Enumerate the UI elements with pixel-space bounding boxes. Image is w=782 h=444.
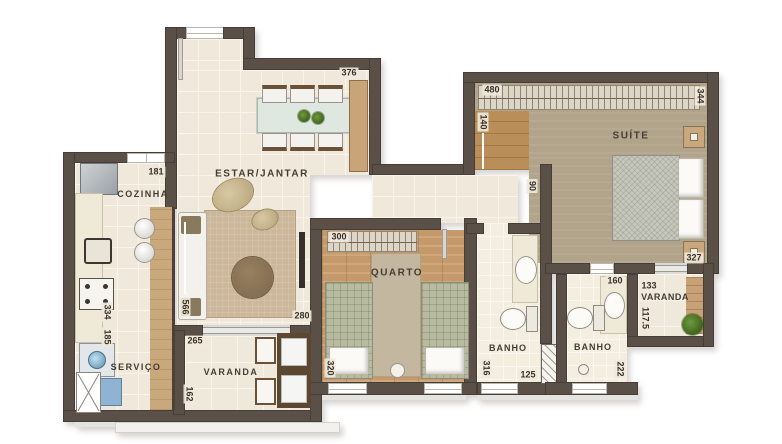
wall xyxy=(372,164,474,175)
banho-social-sink xyxy=(515,256,537,284)
dim-varanda-suite-w: 133 xyxy=(639,281,658,292)
varanda-table xyxy=(277,333,311,408)
kitchen-pass-through xyxy=(127,153,165,163)
room-label-varanda-suite: VARANDA xyxy=(641,292,689,302)
suite-pillow xyxy=(678,199,704,239)
bar-stool xyxy=(134,218,155,239)
suite-varanda-door xyxy=(655,265,687,272)
wall xyxy=(463,72,475,175)
wall xyxy=(63,152,75,422)
entry-step xyxy=(115,422,340,433)
tv-panel xyxy=(299,232,305,288)
single-bed xyxy=(421,282,469,379)
floor-plan-canvas: ESTAR/JANTAR COZINHA SERVIÇO VARANDA QUA… xyxy=(0,0,782,444)
wall xyxy=(545,263,590,274)
dim-varanda-social-d: 162 xyxy=(184,384,195,403)
wall xyxy=(243,58,381,70)
dim-estar-right: 280 xyxy=(292,311,311,322)
floor-hall xyxy=(372,175,518,223)
banho-suite-toilet xyxy=(567,305,605,329)
wall xyxy=(369,58,381,175)
dim-banho-suite-w: 160 xyxy=(605,276,624,287)
room-label-varanda-social: VARANDA xyxy=(204,367,259,377)
dim-varanda-social-w: 265 xyxy=(185,336,204,347)
sill xyxy=(477,395,638,400)
wall xyxy=(63,410,322,422)
wall xyxy=(556,274,567,395)
wall xyxy=(627,336,714,347)
quarto-window-left xyxy=(328,383,367,394)
wall xyxy=(310,218,441,230)
wall xyxy=(614,263,655,274)
dining-chair xyxy=(290,133,315,151)
banho-social-window xyxy=(481,383,518,394)
dim-tick xyxy=(482,133,484,169)
entry-door-opening xyxy=(186,27,224,39)
suite-bed xyxy=(612,155,680,241)
varanda-chair xyxy=(255,378,276,405)
dining-chair xyxy=(318,133,343,151)
dim-cozinha-len: 334 xyxy=(102,302,113,321)
table-plant-icon xyxy=(298,110,310,122)
shower-drain xyxy=(578,364,589,375)
dim-banho-social-d: 316 xyxy=(481,358,492,377)
banho-suite-window xyxy=(572,383,607,394)
suite-pillow xyxy=(678,158,704,198)
dim-estar-left: 566 xyxy=(180,297,191,316)
banho-social-toilet xyxy=(500,306,538,330)
entry-door-leaf xyxy=(179,39,182,79)
dim-quarto-w: 300 xyxy=(329,232,348,243)
wall xyxy=(165,27,177,209)
banho-suite-door-opening xyxy=(590,263,614,274)
dim-varanda-suite-d: 117.5 xyxy=(640,305,651,331)
room-label-servico: SERVIÇO xyxy=(111,362,162,372)
dim-quarto-d: 320 xyxy=(325,358,336,377)
dim-estar-top: 376 xyxy=(339,68,358,79)
dining-chair xyxy=(318,85,343,103)
varanda-chair xyxy=(255,337,276,364)
ottoman xyxy=(232,257,273,298)
room-label-cozinha: COZINHA xyxy=(117,189,169,199)
suite-wardrobe xyxy=(478,85,700,110)
room-label-estar-jantar: ESTAR/JANTAR xyxy=(215,169,309,180)
wall xyxy=(463,72,719,83)
dim-tick xyxy=(184,222,186,294)
quarto-window-right xyxy=(424,383,462,394)
apartment-floor-plan: ESTAR/JANTAR COZINHA SERVIÇO VARANDA QUA… xyxy=(0,0,782,444)
fridge xyxy=(80,163,118,195)
dim-servico-len: 185 xyxy=(102,327,113,346)
nightstand xyxy=(683,126,705,148)
bedside-table xyxy=(390,363,405,378)
dim-suite-w: 480 xyxy=(482,85,501,96)
banho-suite-sink xyxy=(604,292,625,319)
quarto-door-leaf xyxy=(443,230,446,258)
dining-chair xyxy=(262,85,287,103)
varanda-plant-icon xyxy=(682,314,703,335)
kitchen-counter xyxy=(75,193,103,343)
dim-suite-bed-wall: 327 xyxy=(684,253,703,264)
buffet-sideboard xyxy=(349,80,368,172)
room-label-banho-social: BANHO xyxy=(489,343,527,353)
dim-suite-entry-w: 140 xyxy=(478,112,489,131)
wall xyxy=(703,263,714,347)
service-louver-door xyxy=(76,372,101,413)
sill xyxy=(322,395,466,400)
wall xyxy=(540,164,552,344)
kitchen-bar-counter xyxy=(150,207,175,410)
dim-banho-social-w: 125 xyxy=(518,370,537,381)
wall xyxy=(707,72,719,274)
dining-chair xyxy=(262,133,287,151)
dim-cozinha-top: 181 xyxy=(146,167,165,178)
dim-banho-suite-d: 222 xyxy=(615,359,626,378)
room-label-suite: SUÍTE xyxy=(613,131,650,142)
kitchen-sink xyxy=(84,238,112,264)
room-label-quarto: QUARTO xyxy=(371,268,423,279)
bar-stool xyxy=(134,242,155,263)
wall xyxy=(466,223,484,234)
room-label-banho-suite: BANHO xyxy=(574,342,612,352)
dim-hall-w: 90 xyxy=(527,179,538,193)
dining-chair xyxy=(290,85,315,103)
dim-suite-d: 344 xyxy=(695,86,706,105)
table-plant-icon xyxy=(312,112,324,124)
laundry-tank xyxy=(98,378,122,406)
